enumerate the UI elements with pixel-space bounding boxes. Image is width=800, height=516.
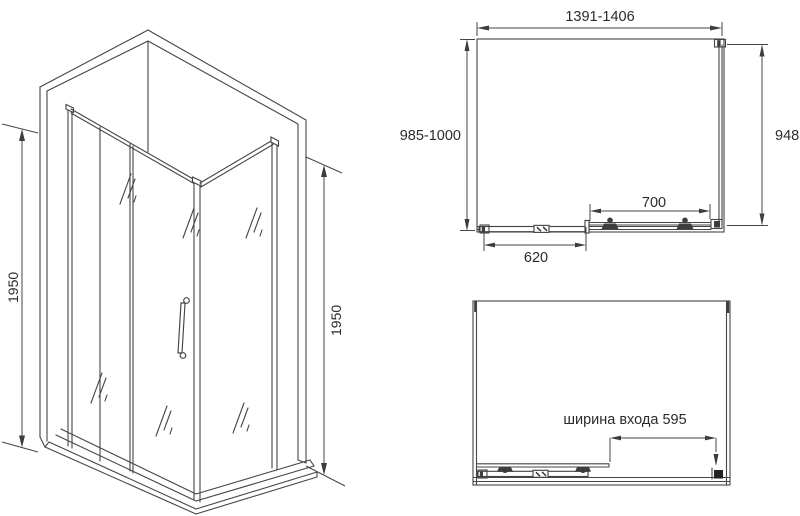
sliding-door-bar-open <box>477 464 609 467</box>
glass-panels <box>91 127 262 473</box>
dimension-label-side-panel: 948 <box>775 128 799 144</box>
dimension-height-right: 1950 <box>306 157 345 486</box>
sliding-track-closed <box>477 218 711 234</box>
wall-profile-top-left-mark <box>474 302 476 313</box>
dimension-depth-range: 985-1000 <box>400 39 475 231</box>
dimension-label-door-travel: 700 <box>642 195 666 211</box>
dimension-side-panel: 948 <box>727 45 799 226</box>
corner-block-bottom-right <box>711 220 722 229</box>
dimension-label-fixed-panel: 620 <box>524 250 548 266</box>
dimension-width-range: 1391-1406 <box>477 9 722 36</box>
dimension-label-entry-width: ширина входа 595 <box>563 412 686 428</box>
dimension-label-depth-range: 985-1000 <box>400 128 461 144</box>
dimension-label-height-right: 1950 <box>328 305 344 336</box>
glass-reflection-marks <box>91 174 262 436</box>
dimension-label-width-range: 1391-1406 <box>565 9 634 25</box>
plan-frame <box>477 39 726 232</box>
handle-bottom-standoff <box>180 353 186 359</box>
plan-frame-open <box>473 301 730 485</box>
panel-center-bracket <box>534 225 549 232</box>
technical-drawing-page: 1950 1950 <box>0 0 800 516</box>
door-roller <box>677 218 694 230</box>
handle-top-standoff <box>184 298 190 304</box>
fixed-panel-bar <box>479 227 587 232</box>
door-roller <box>602 218 619 230</box>
door-handle <box>178 298 189 359</box>
left-post-cap <box>66 105 74 113</box>
dimension-label-height-left: 1950 <box>5 272 21 303</box>
panel-center-bracket-open <box>533 470 548 477</box>
dimension-height-left: 1950 <box>2 124 38 452</box>
room-walls <box>40 30 306 463</box>
sliding-track-open <box>473 464 730 479</box>
plan-view-open: ширина входа 595 <box>473 301 730 485</box>
dimension-door-travel: 700 <box>590 195 710 221</box>
isometric-view: 1950 1950 <box>2 30 345 514</box>
handle-bar <box>178 303 185 353</box>
enclosure-frame <box>66 105 279 503</box>
side-panel-glass <box>719 45 722 225</box>
base-tray <box>45 429 317 514</box>
wall-profile-top-right-mark <box>727 302 729 314</box>
shower-enclosure-drawing: 1950 1950 <box>0 0 800 516</box>
plan-view-closed: 1391-1406 985-1000 948 700 <box>400 9 799 266</box>
dimension-entry-width: ширина входа 595 <box>563 412 718 466</box>
